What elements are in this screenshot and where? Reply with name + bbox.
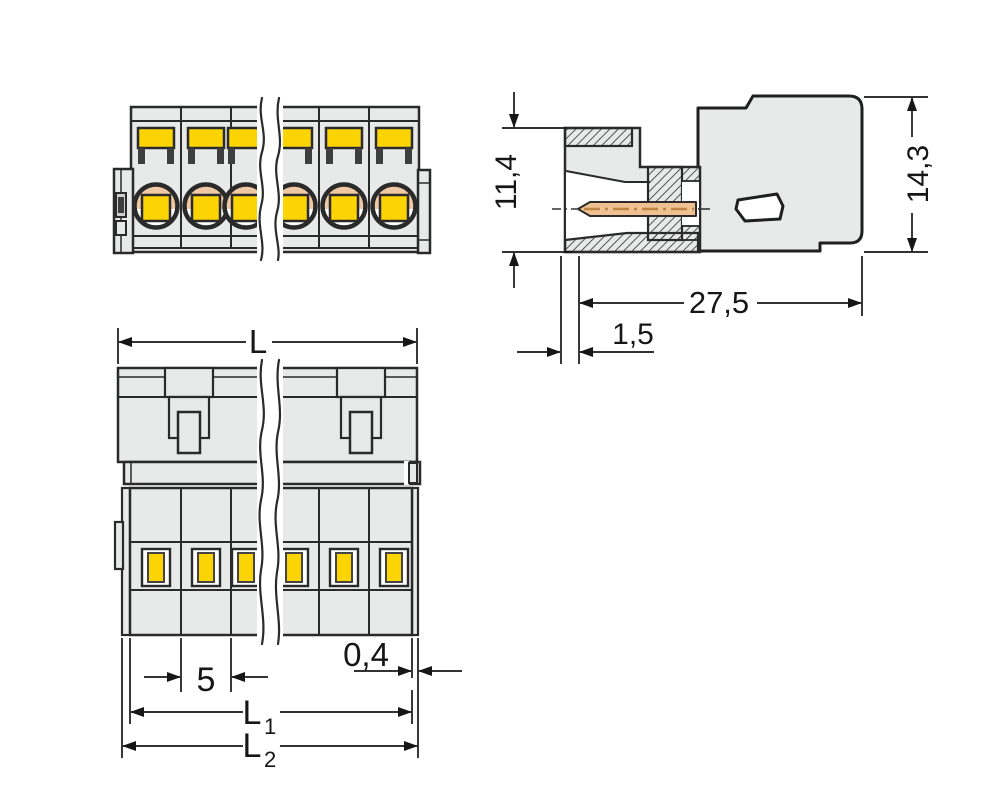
plug-cross-section <box>552 128 713 252</box>
front-right-end-plate <box>418 170 430 253</box>
hatched-top-wall <box>565 128 632 146</box>
terminal-slot <box>280 549 308 586</box>
terminal-slot <box>380 549 408 586</box>
side-latch-bump <box>115 522 123 569</box>
side-view: 11,4 14,3 27,5 1,5 <box>490 92 935 364</box>
dim-label-pin-recess: 1,5 <box>612 318 654 351</box>
drawing-canvas: 11,4 14,3 27,5 1,5 <box>0 0 1000 792</box>
front-left-latch-plate <box>114 169 133 253</box>
terminal-slot <box>232 549 260 586</box>
dim-overall-depth: 27,5 <box>561 256 862 364</box>
dim-label-overall-depth: 27,5 <box>689 285 749 320</box>
dim-overall-length: L <box>118 323 417 364</box>
dim-label-overall-length: L <box>249 323 267 360</box>
connector-dimensional-drawing: 11,4 14,3 27,5 1,5 <box>0 0 1000 792</box>
front-break-lines <box>257 98 283 260</box>
terminal-slot <box>142 549 170 586</box>
housing-window <box>736 194 783 221</box>
dim-label-overall-height: 14,3 <box>902 145 935 203</box>
housing-outline <box>698 96 862 251</box>
dim-label-end-wall: 0,4 <box>343 636 389 673</box>
dim-overall-height: 14,3 <box>864 97 935 252</box>
dim-label-plug-height: 11,4 <box>490 154 523 210</box>
dim-end-wall: 0,4 <box>343 636 462 758</box>
terminal-slot <box>192 549 220 586</box>
front-view <box>114 98 430 260</box>
dim-label-l2-sub: 2 <box>264 747 276 772</box>
top-view: L 5 0,4 L 1 <box>115 323 462 772</box>
dim-label-pole-pitch: 5 <box>197 661 216 699</box>
terminal-slot <box>330 549 358 586</box>
dim-plug-height: 11,4 <box>490 92 572 288</box>
dim-pin-recess: 1,5 <box>517 318 654 352</box>
dim-label-l2-base: L <box>243 727 262 765</box>
dim-pole-pitch: 5 <box>144 638 268 699</box>
dim-label-l1-sub: 1 <box>264 714 276 739</box>
top-view-break-lines <box>257 360 283 644</box>
